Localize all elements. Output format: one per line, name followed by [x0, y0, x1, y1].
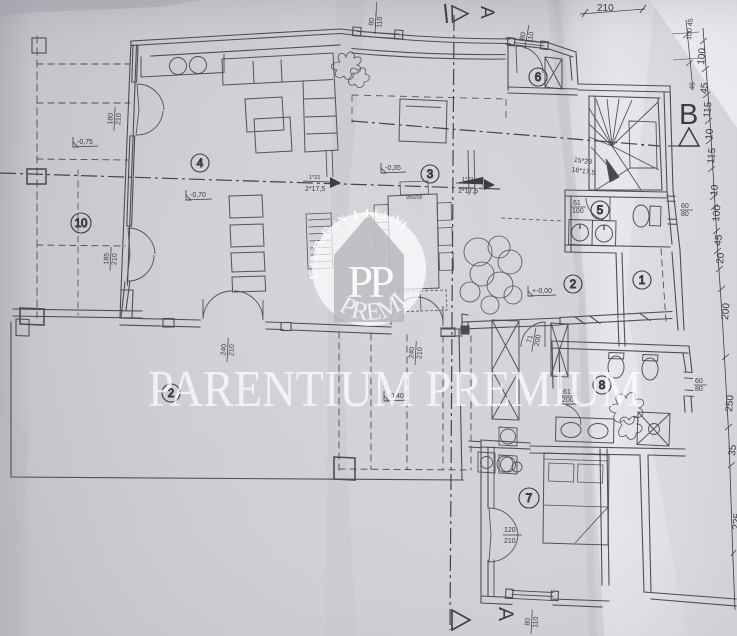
svg-text:100: 100 [572, 208, 584, 215]
svg-text:45: 45 [689, 82, 697, 90]
svg-text:A: A [476, 6, 497, 19]
svg-text:210: 210 [504, 538, 516, 545]
svg-text:PARENTIUM PREMIUM: PARENTIUM PREMIUM [148, 361, 642, 418]
svg-text:4: 4 [197, 158, 204, 170]
svg-text:45: 45 [699, 82, 711, 94]
svg-text:6: 6 [535, 72, 541, 84]
svg-text:7: 7 [526, 493, 532, 505]
svg-text:210: 210 [416, 347, 424, 359]
svg-text:1*22: 1*22 [309, 175, 320, 181]
svg-text:120: 120 [504, 527, 516, 534]
svg-text:110: 110 [376, 16, 384, 28]
svg-text:80: 80 [368, 18, 375, 26]
svg-text:100: 100 [696, 47, 708, 65]
svg-text:110: 110 [532, 616, 540, 628]
svg-text:45: 45 [713, 234, 725, 246]
svg-text:20: 20 [715, 252, 727, 264]
svg-text:80: 80 [524, 618, 531, 626]
svg-text:2*17,5: 2*17,5 [305, 186, 325, 193]
svg-text:185: 185 [103, 253, 111, 265]
svg-text:100: 100 [711, 204, 723, 222]
svg-text:35: 35 [727, 444, 737, 456]
svg-text:60: 60 [681, 203, 689, 210]
svg-text:-0,75: -0,75 [77, 139, 93, 146]
svg-text:210: 210 [228, 344, 236, 356]
svg-text:1*22: 1*22 [462, 177, 473, 183]
svg-text:80: 80 [695, 386, 703, 393]
svg-text:240: 240 [220, 344, 228, 356]
svg-text:115: 115 [702, 101, 714, 118]
svg-text:+-0,00: +-0,00 [532, 288, 552, 295]
svg-text:2*17,5: 2*17,5 [458, 188, 478, 195]
svg-text:61: 61 [573, 200, 581, 207]
svg-text:60: 60 [695, 378, 703, 385]
svg-text:115: 115 [706, 147, 718, 164]
svg-text:180: 180 [107, 113, 115, 125]
svg-text:210: 210 [111, 253, 119, 265]
svg-text:225: 225 [731, 512, 737, 530]
svg-text:B: B [679, 99, 698, 131]
svg-text:80: 80 [681, 211, 689, 218]
svg-text:A: A [494, 607, 517, 621]
svg-text:250: 250 [724, 394, 736, 412]
svg-text:3: 3 [427, 169, 433, 181]
svg-text:2: 2 [570, 279, 576, 291]
svg-text:200: 200 [720, 302, 732, 320]
svg-text:-0,70: -0,70 [190, 192, 206, 199]
svg-text:10: 10 [704, 128, 716, 140]
svg-text:10: 10 [75, 218, 88, 230]
svg-text:5: 5 [597, 205, 603, 217]
svg-text:90x200: 90x200 [406, 195, 423, 201]
svg-text:10: 10 [709, 184, 721, 196]
svg-text:210: 210 [115, 113, 123, 125]
svg-text:-0,35: -0,35 [385, 165, 401, 172]
svg-text:1: 1 [639, 275, 645, 287]
svg-text:240: 240 [408, 347, 416, 359]
